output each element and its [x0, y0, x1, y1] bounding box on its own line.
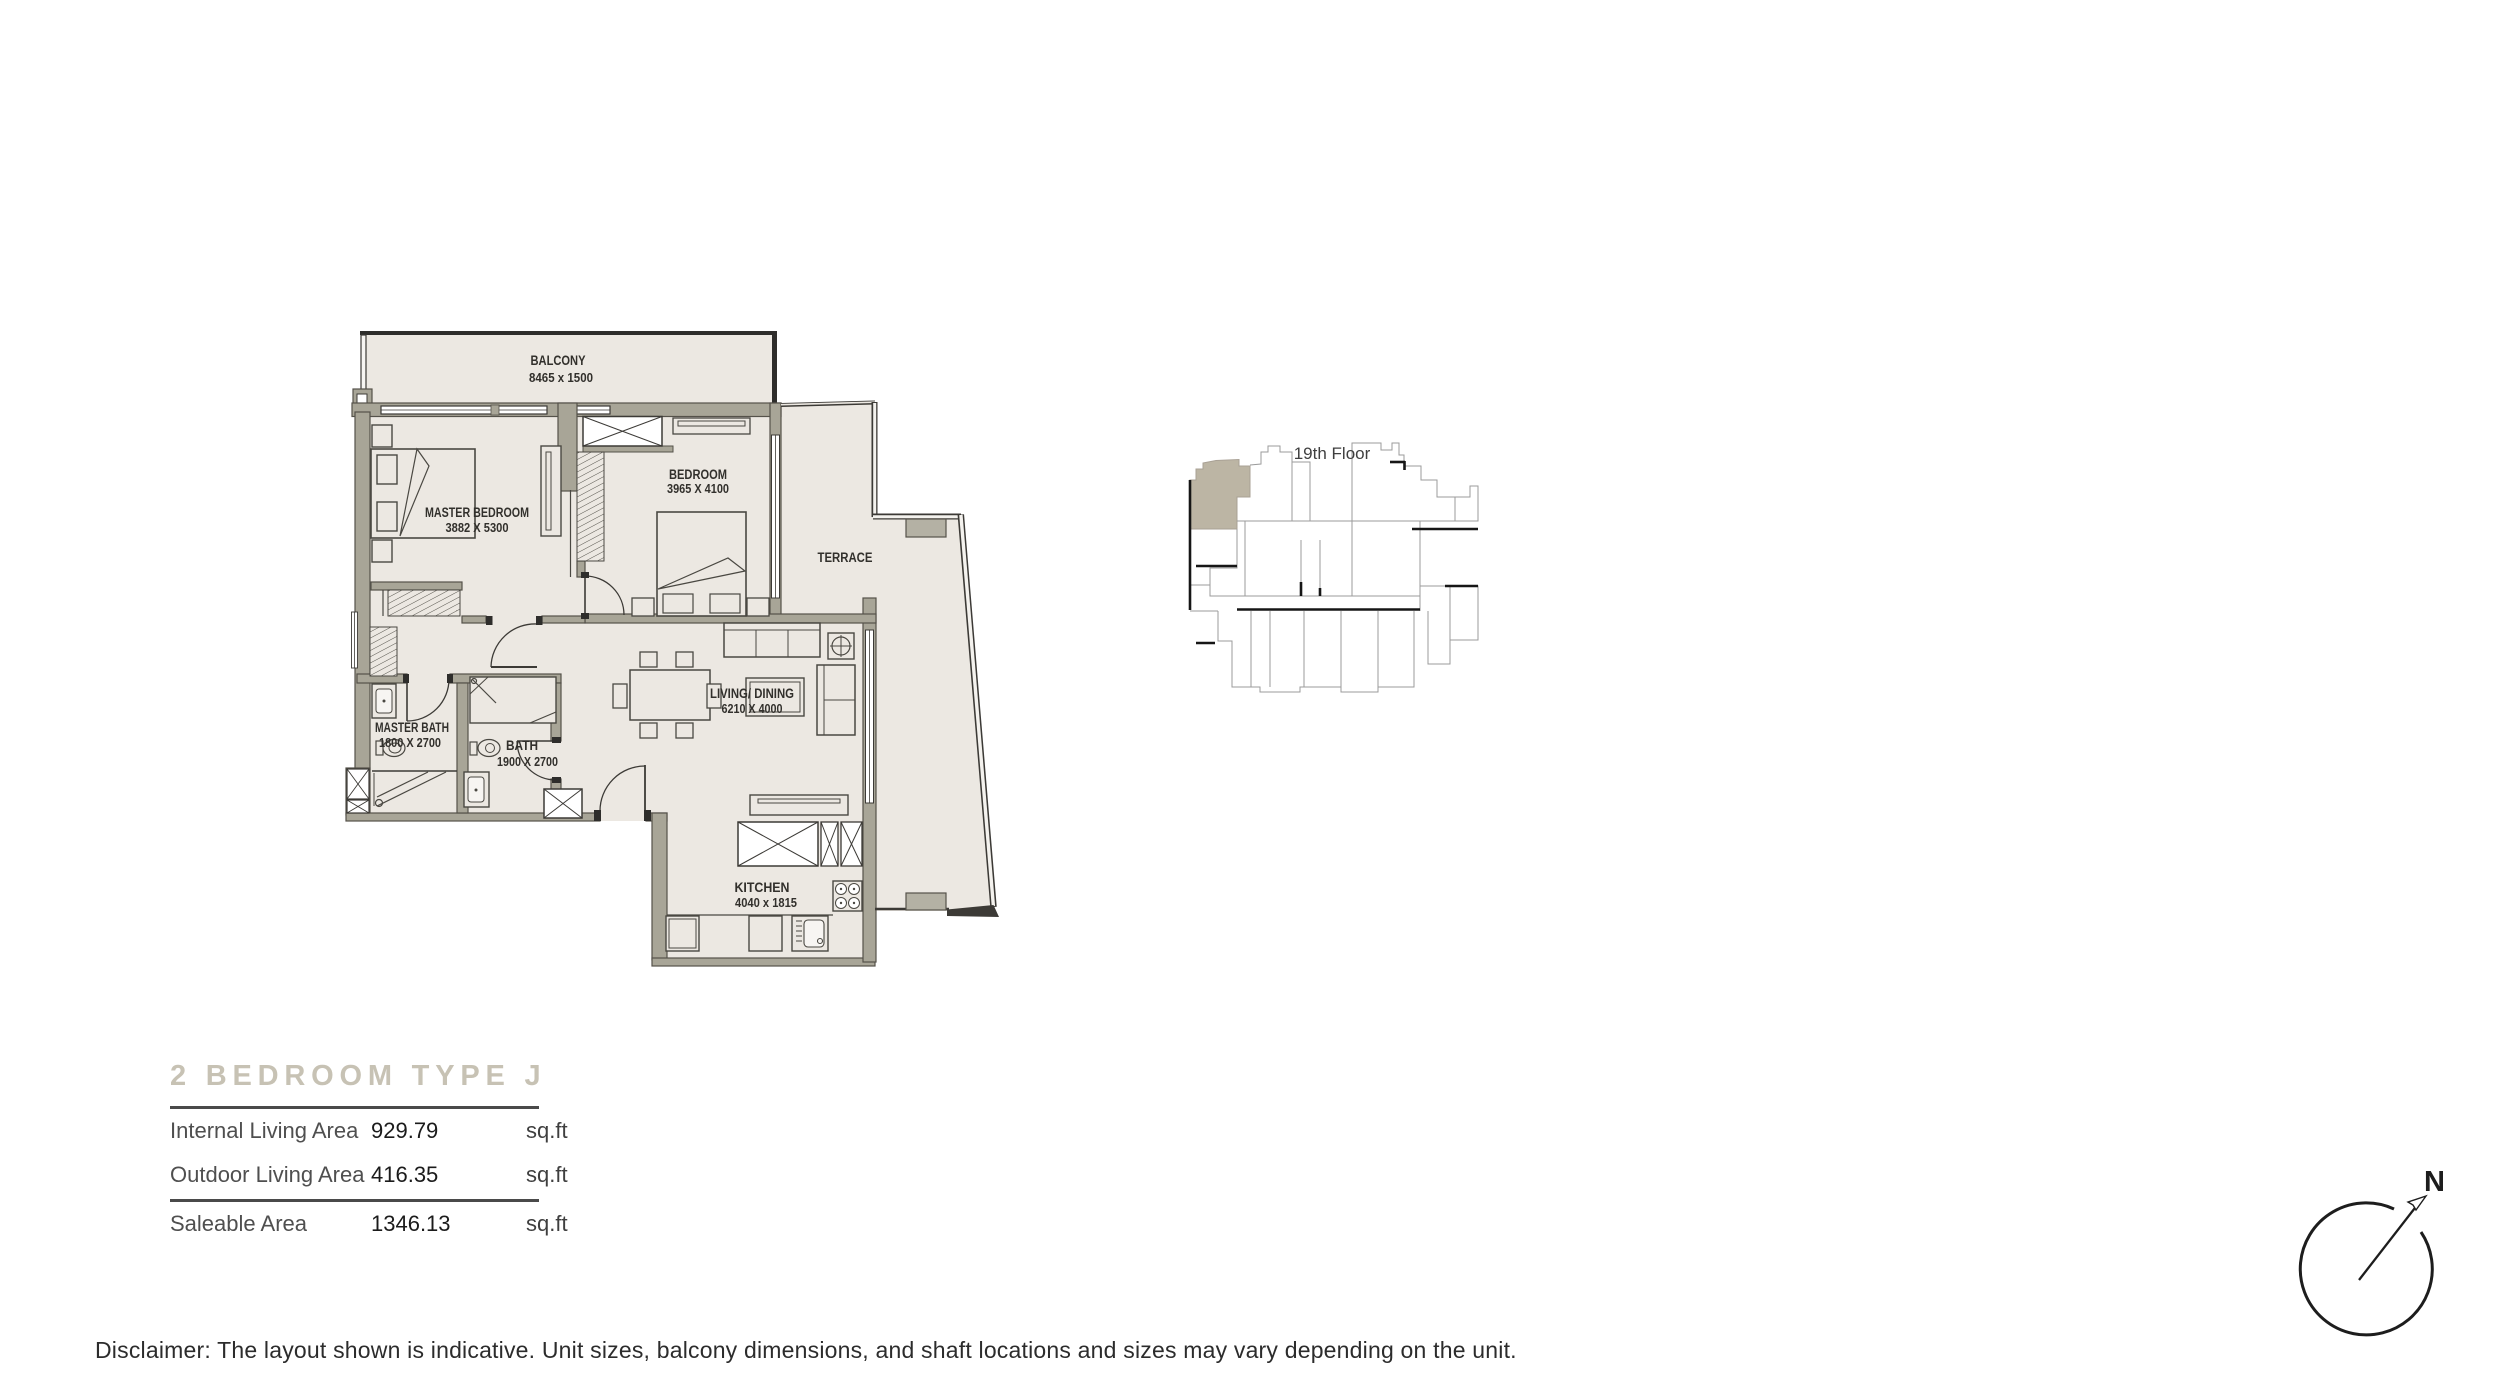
svg-text:4040 x 1815: 4040 x 1815 [735, 895, 797, 910]
svg-text:BEDROOM: BEDROOM [669, 467, 727, 482]
svg-text:19th Floor: 19th Floor [1294, 444, 1371, 463]
svg-text:3965 X 4100: 3965 X 4100 [667, 481, 729, 496]
svg-text:N: N [2424, 1166, 2445, 1198]
svg-text:LIVING/ DINING: LIVING/ DINING [710, 686, 794, 701]
svg-text:MASTER BATH: MASTER BATH [375, 720, 449, 735]
svg-text:1900 X 2700: 1900 X 2700 [497, 754, 558, 769]
svg-text:1800 X 2700: 1800 X 2700 [379, 735, 441, 750]
svg-text:BALCONY: BALCONY [531, 353, 586, 368]
svg-text:BATH: BATH [506, 738, 538, 753]
svg-text:6210 X 4000: 6210 X 4000 [722, 701, 783, 716]
svg-text:TERRACE: TERRACE [818, 550, 873, 565]
svg-text:3882 X 5300: 3882 X 5300 [446, 520, 509, 535]
svg-text:KITCHEN: KITCHEN [735, 880, 790, 895]
svg-text:8465 x 1500: 8465 x 1500 [529, 370, 593, 385]
svg-text:MASTER BEDROOM: MASTER BEDROOM [425, 505, 529, 520]
